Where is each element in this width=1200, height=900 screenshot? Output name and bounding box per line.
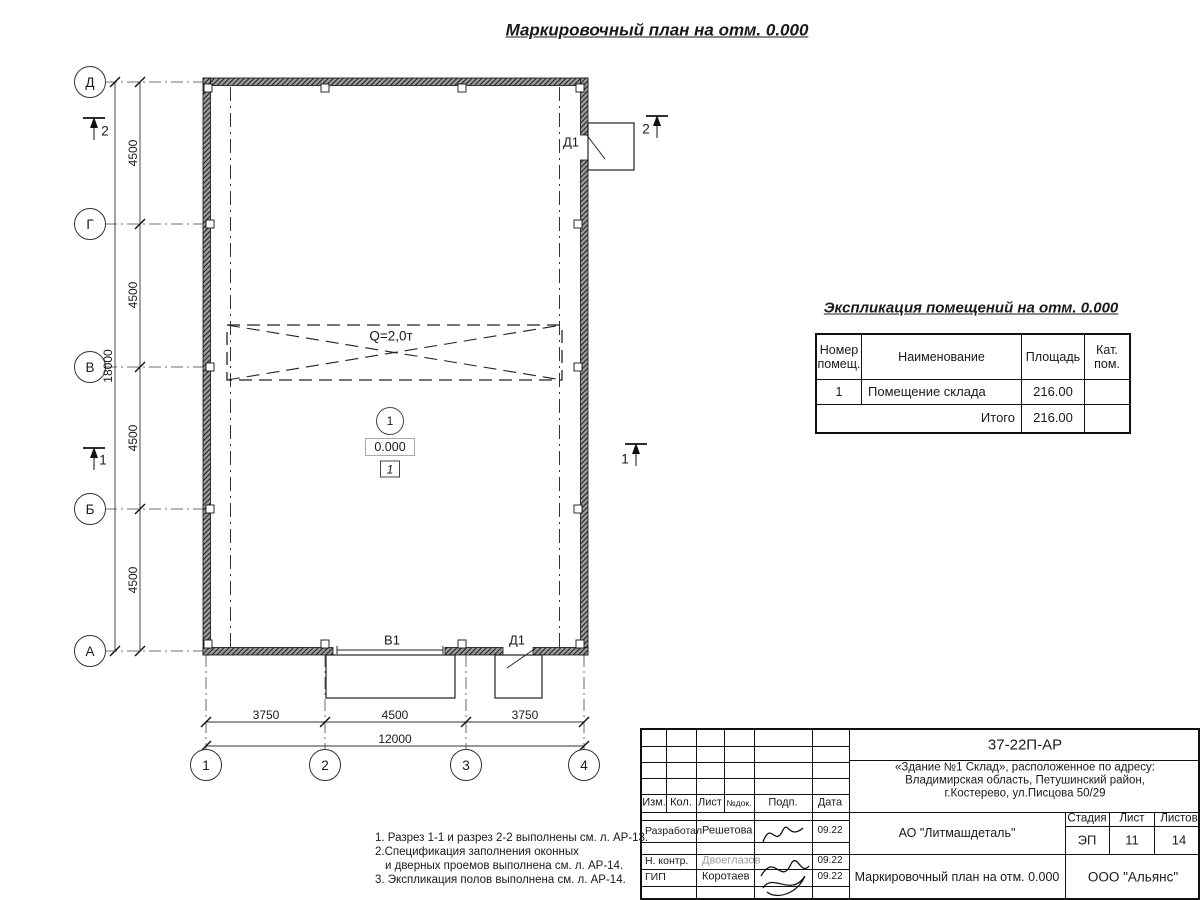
stamp-role-ncontrol: Н. контр. [645, 856, 688, 867]
axis-bubble-3: 3 [450, 749, 482, 781]
stamp-date-ncontrol: 09.22 [817, 856, 842, 866]
stamp-name-ncontrol: Двоеглазов [702, 856, 760, 867]
stamp-stage-label: Стадия [1067, 813, 1106, 825]
dim-left-2: 4500 [127, 282, 139, 309]
stamp-col-list: Лист [698, 798, 722, 809]
stamp-col-ndok: №док. [727, 799, 752, 808]
dim-left-total: 18000 [102, 349, 114, 382]
dim-bottom-3: 3750 [512, 709, 539, 721]
schedule-header-cat: Кат. пом. [1085, 335, 1129, 380]
crane-rail-lines [231, 87, 560, 647]
stamp-col-izm: Изм. [642, 798, 666, 809]
dim-left-3: 4500 [127, 425, 139, 452]
section-1-label-left: 1 [99, 453, 107, 467]
axis-bubble-a: А [74, 635, 106, 667]
axis-bubble-g: Г [74, 208, 106, 240]
level-mark-box: 0.000 [365, 438, 415, 456]
stamp-address-line: Владимирская область, Петушинский район, [905, 775, 1145, 787]
stamp-sheets-label: Листов [1160, 813, 1197, 825]
schedule-cell-num: 1 [817, 380, 862, 405]
stamp-doc-number: 37-22П-АР [988, 738, 1062, 753]
axis-bubble-1: 1 [190, 749, 222, 781]
section-1-label-right: 1 [621, 452, 629, 466]
stamp-sheets-value: 14 [1172, 834, 1186, 847]
room-schedule-table: Номер помещ. Наименование Площадь Кат. п… [815, 333, 1131, 434]
axis-bubble-2: 2 [309, 749, 341, 781]
floor-type-box: 1 [380, 461, 400, 478]
drawing-sheet: Маркировочный план на отм. 0.000 Д Г В Б… [0, 0, 1200, 900]
schedule-cell-cat [1085, 380, 1129, 405]
notes-block: 1. Разрез 1-1 и разрез 2-2 выполнены см.… [375, 831, 648, 887]
dim-bottom-1: 3750 [253, 709, 280, 721]
schedule-title: Экспликация помещений на отм. 0.000 [824, 301, 1119, 316]
room-number-bubble: 1 [376, 407, 404, 435]
door-top-tag: Д1 [563, 136, 579, 149]
stamp-sheet-label: Лист [1120, 813, 1145, 825]
sheet-title: Маркировочный план на отм. 0.000 [506, 22, 809, 39]
axis-bubble-d: Д [74, 66, 106, 98]
note-line: и дверных проемов выполнена см. л. АР-14… [375, 859, 648, 873]
stamp-name-developer: Решетова [702, 826, 752, 837]
title-block: Изм. Кол. Лист №док. Подп. Дата Разработ… [640, 728, 1200, 900]
crane-capacity-label: Q=2,0т [366, 329, 415, 343]
stamp-org: ООО "Альянс" [1088, 870, 1178, 884]
schedule-cell-name: Помещение склада [862, 380, 1022, 405]
note-line: 3. Экспликация полов выполнена см. л. АР… [375, 873, 648, 887]
stamp-col-podp: Подп. [768, 798, 797, 809]
dim-bottom-2: 4500 [382, 709, 409, 721]
schedule-header-name: Наименование [862, 335, 1022, 380]
schedule-header-num: Номер помещ. [817, 335, 862, 380]
wall-pilasters [204, 84, 584, 648]
dim-left-1: 4500 [127, 140, 139, 167]
stamp-col-kol: Кол. [670, 798, 692, 809]
dim-bottom-total: 12000 [378, 733, 411, 745]
stamp-address-line: г.Костерево, ул.Писцова 50/29 [945, 788, 1106, 800]
stamp-role-gip: ГИП [645, 872, 666, 883]
stamp-company: АО "Литмашдеталь" [899, 827, 1016, 840]
stamp-role-developer: Разработал [645, 826, 702, 837]
stamp-stage-value: ЭП [1078, 834, 1097, 847]
schedule-header-area: Площадь [1022, 335, 1085, 380]
stamp-date-developer: 09.22 [817, 826, 842, 836]
gate-tag: В1 [384, 634, 400, 647]
stamp-address-line: «Здание №1 Склад», расположенное по адре… [895, 762, 1155, 774]
note-line: 2.Спецификация заполнения оконных [375, 845, 648, 859]
schedule-total-label: Итого [817, 405, 1022, 432]
note-line: 1. Разрез 1-1 и разрез 2-2 выполнены см.… [375, 831, 648, 845]
walls [203, 78, 588, 655]
section-2-label-left: 2 [101, 124, 109, 138]
stamp-sheet-value: 11 [1125, 834, 1139, 847]
stamp-date-gip: 09.22 [817, 872, 842, 882]
door-bottom-tag: Д1 [509, 634, 525, 647]
stamp-drawing-name: Маркировочный план на отм. 0.000 [855, 871, 1060, 884]
schedule-cell-area: 216.00 [1022, 380, 1085, 405]
stamp-name-gip: Коротаев [702, 872, 750, 883]
axis-bubble-4: 4 [568, 749, 600, 781]
dim-left-4: 4500 [127, 567, 139, 594]
schedule-total-value: 216.00 [1022, 405, 1085, 432]
axis-bubble-b: Б [74, 493, 106, 525]
section-2-label-right: 2 [642, 122, 650, 136]
signature-squiggles [753, 814, 815, 900]
stamp-col-data: Дата [818, 798, 842, 809]
schedule-total-cat [1085, 405, 1129, 432]
